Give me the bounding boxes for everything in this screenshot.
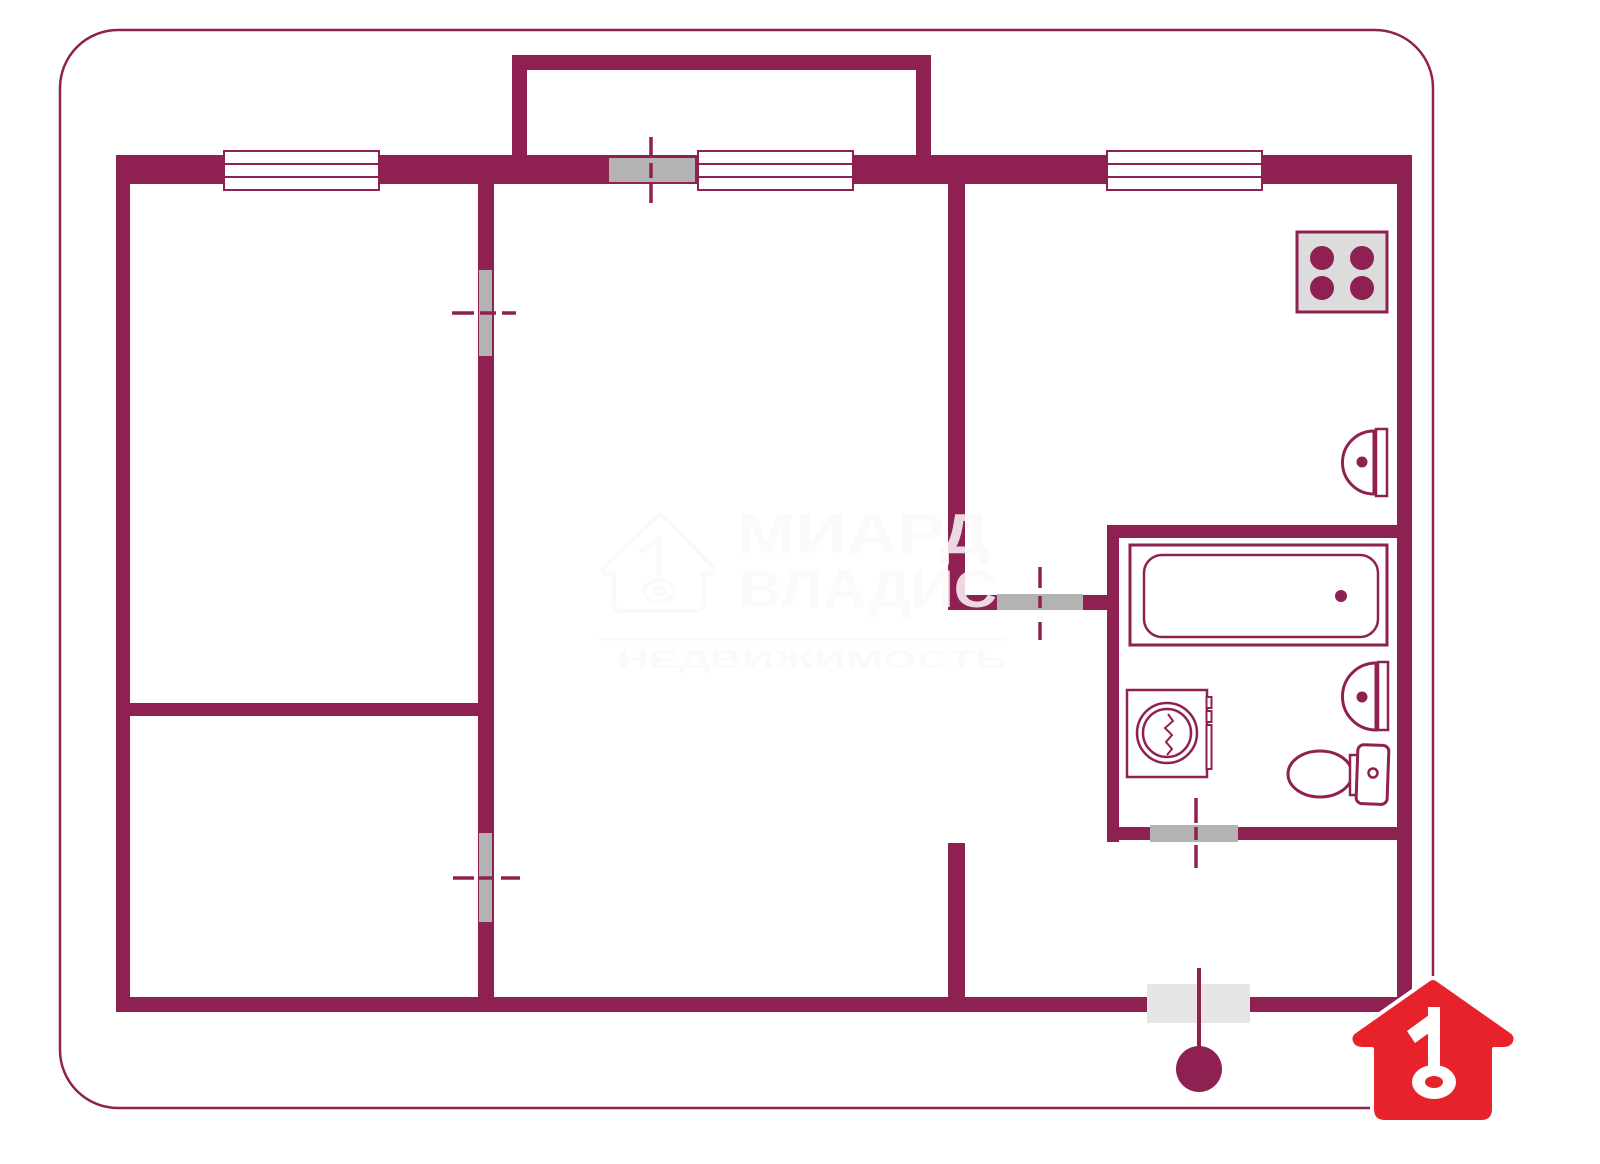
bathroom-door xyxy=(1150,825,1238,842)
windows xyxy=(224,151,1262,190)
entrance-marker-circle xyxy=(1176,1046,1222,1092)
watermark-line3: НЕДВИЖИМОСТЬ xyxy=(617,646,1007,674)
washing-machine-icon xyxy=(1127,690,1212,777)
wall-balcony-top xyxy=(512,55,931,70)
window-kitchen xyxy=(1107,151,1262,190)
window-room-top-left xyxy=(224,151,379,190)
wall-left-rooms-divider xyxy=(130,703,478,716)
wall-bathroom-left xyxy=(1107,525,1119,842)
wall-balcony-right xyxy=(916,55,931,155)
wall-exterior-right xyxy=(1397,155,1412,1012)
bathtub-icon xyxy=(1130,545,1387,645)
window-balcony-room xyxy=(698,151,853,190)
watermark-line2: ВЛАДИС xyxy=(739,560,997,619)
wall-bathroom-top xyxy=(1107,525,1397,538)
wall-exterior-left xyxy=(116,155,130,1012)
watermark-line1: МИАРД xyxy=(737,502,990,566)
floor-plan-image: МИАРД ВЛАДИС НЕДВИЖИМОСТЬ xyxy=(0,0,1600,1164)
wall-central-right-lower xyxy=(948,843,965,997)
stove-icon xyxy=(1297,232,1387,312)
logo-key-hole xyxy=(1425,1076,1443,1088)
